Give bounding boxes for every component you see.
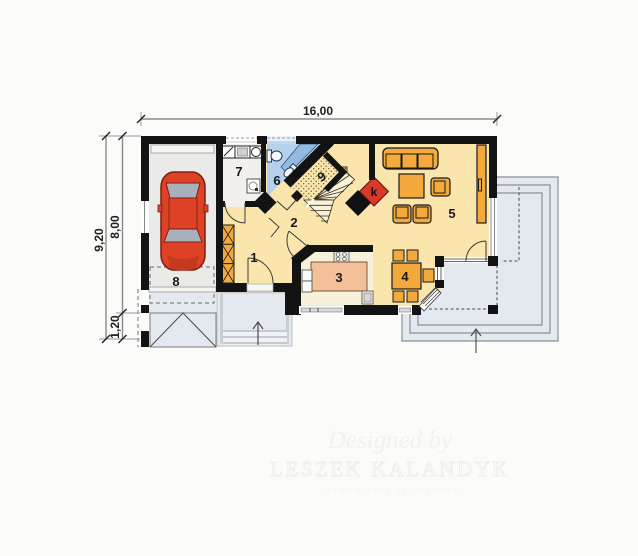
svg-text:7: 7 [235,164,242,179]
svg-text:1,20: 1,20 [108,315,122,339]
svg-text:8,00: 8,00 [108,215,122,239]
svg-text:LESZEK KALANDYK: LESZEK KALANDYK [270,457,510,481]
svg-text:4: 4 [401,269,409,284]
svg-text:1: 1 [250,250,257,265]
svg-text:uprawnienia projektowe: uprawnienia projektowe [320,484,460,496]
svg-text:2: 2 [290,215,297,230]
svg-text:3: 3 [335,270,342,285]
svg-text:5: 5 [448,206,455,221]
svg-text:6: 6 [273,173,280,188]
svg-text:16,00: 16,00 [303,104,333,118]
svg-text:k: k [371,185,378,199]
svg-text:Designed by: Designed by [327,427,453,454]
svg-text:8: 8 [172,274,179,289]
svg-text:9,20: 9,20 [92,228,106,252]
